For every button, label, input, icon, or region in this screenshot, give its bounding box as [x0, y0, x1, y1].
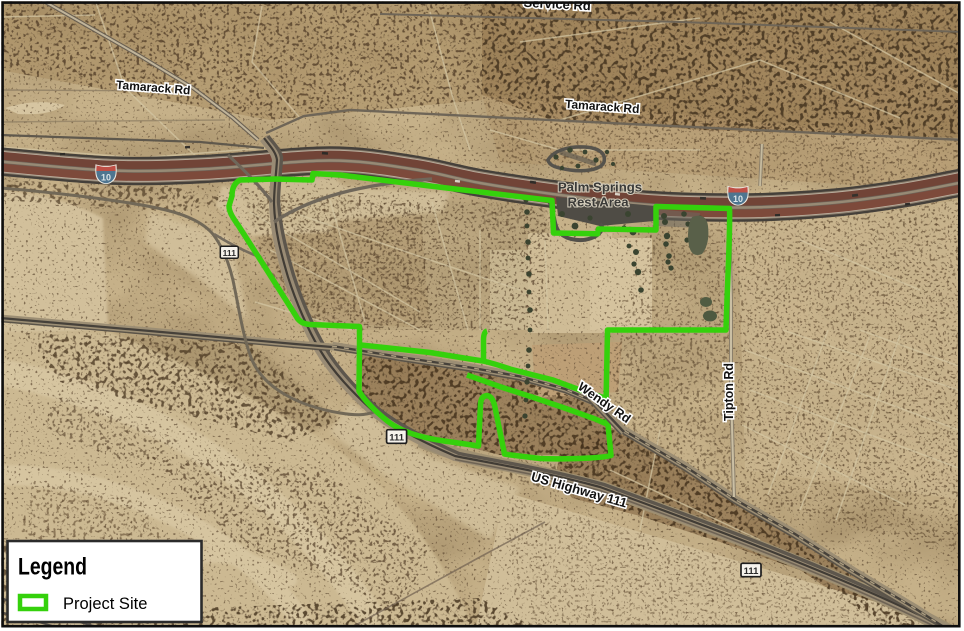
svg-text:111: 111	[223, 248, 237, 258]
svg-text:Rest Area: Rest Area	[567, 195, 629, 210]
svg-text:Palm Springs: Palm Springs	[558, 180, 642, 195]
svg-text:10: 10	[733, 194, 743, 204]
svg-text:Tipton Rd: Tipton Rd	[722, 363, 736, 421]
svg-text:111: 111	[389, 433, 405, 444]
svg-text:Project Site: Project Site	[63, 595, 147, 613]
svg-text:111: 111	[744, 566, 760, 577]
svg-text:Legend: Legend	[18, 554, 87, 581]
svg-text:10: 10	[101, 173, 111, 183]
